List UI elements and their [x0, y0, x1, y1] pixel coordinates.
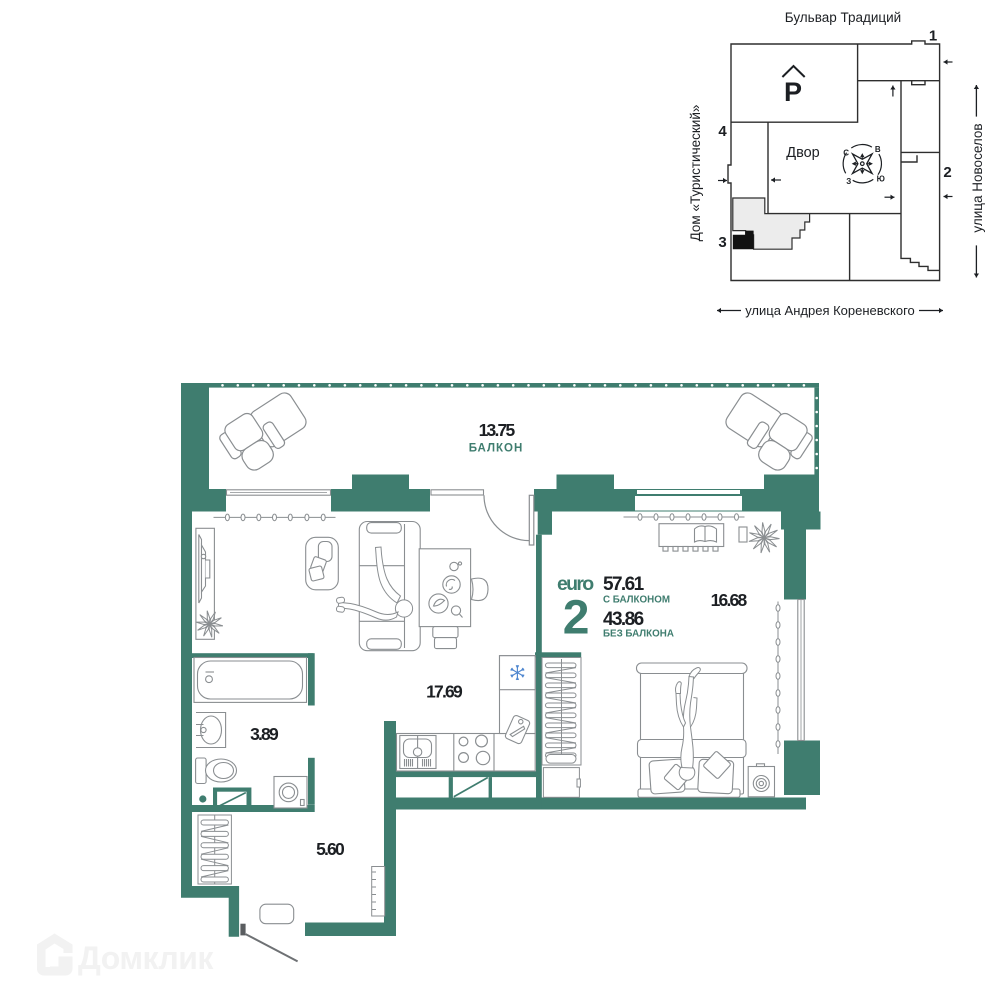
svg-text:4: 4 — [718, 123, 727, 140]
svg-text:5.60: 5.60 — [316, 839, 345, 859]
svg-text:1: 1 — [929, 28, 937, 45]
svg-text:С: С — [843, 148, 849, 157]
svg-text:2: 2 — [563, 592, 590, 645]
svg-text:2: 2 — [943, 164, 951, 181]
svg-text:3: 3 — [718, 234, 726, 251]
svg-text:Бульвар Традиций: Бульвар Традиций — [785, 10, 901, 25]
svg-text:17.69: 17.69 — [426, 682, 463, 702]
svg-text:Двор: Двор — [786, 145, 820, 161]
svg-text:В: В — [875, 145, 881, 154]
svg-text:З: З — [846, 177, 851, 186]
svg-text:улица Андрея Кореневского: улица Андрея Кореневского — [745, 303, 915, 318]
svg-text:57.61: 57.61 — [603, 574, 645, 595]
svg-text:С БАЛКОНОМ: С БАЛКОНОМ — [603, 595, 670, 606]
svg-text:улица Новоселов: улица Новоселов — [970, 123, 985, 232]
svg-text:13.75: 13.75 — [479, 420, 516, 440]
svg-text:Р: Р — [784, 77, 802, 107]
svg-text:Домклик: Домклик — [78, 940, 214, 976]
svg-text:БАЛКОН: БАЛКОН — [469, 443, 524, 455]
svg-text:16.68: 16.68 — [711, 590, 748, 610]
svg-text:БЕЗ БАЛКОНА: БЕЗ БАЛКОНА — [603, 629, 674, 640]
svg-text:Дом «Туристический»: Дом «Туристический» — [688, 105, 703, 242]
svg-text:3.89: 3.89 — [250, 724, 279, 744]
svg-text:Ю: Ю — [877, 175, 885, 184]
svg-text:43.86: 43.86 — [603, 609, 644, 630]
